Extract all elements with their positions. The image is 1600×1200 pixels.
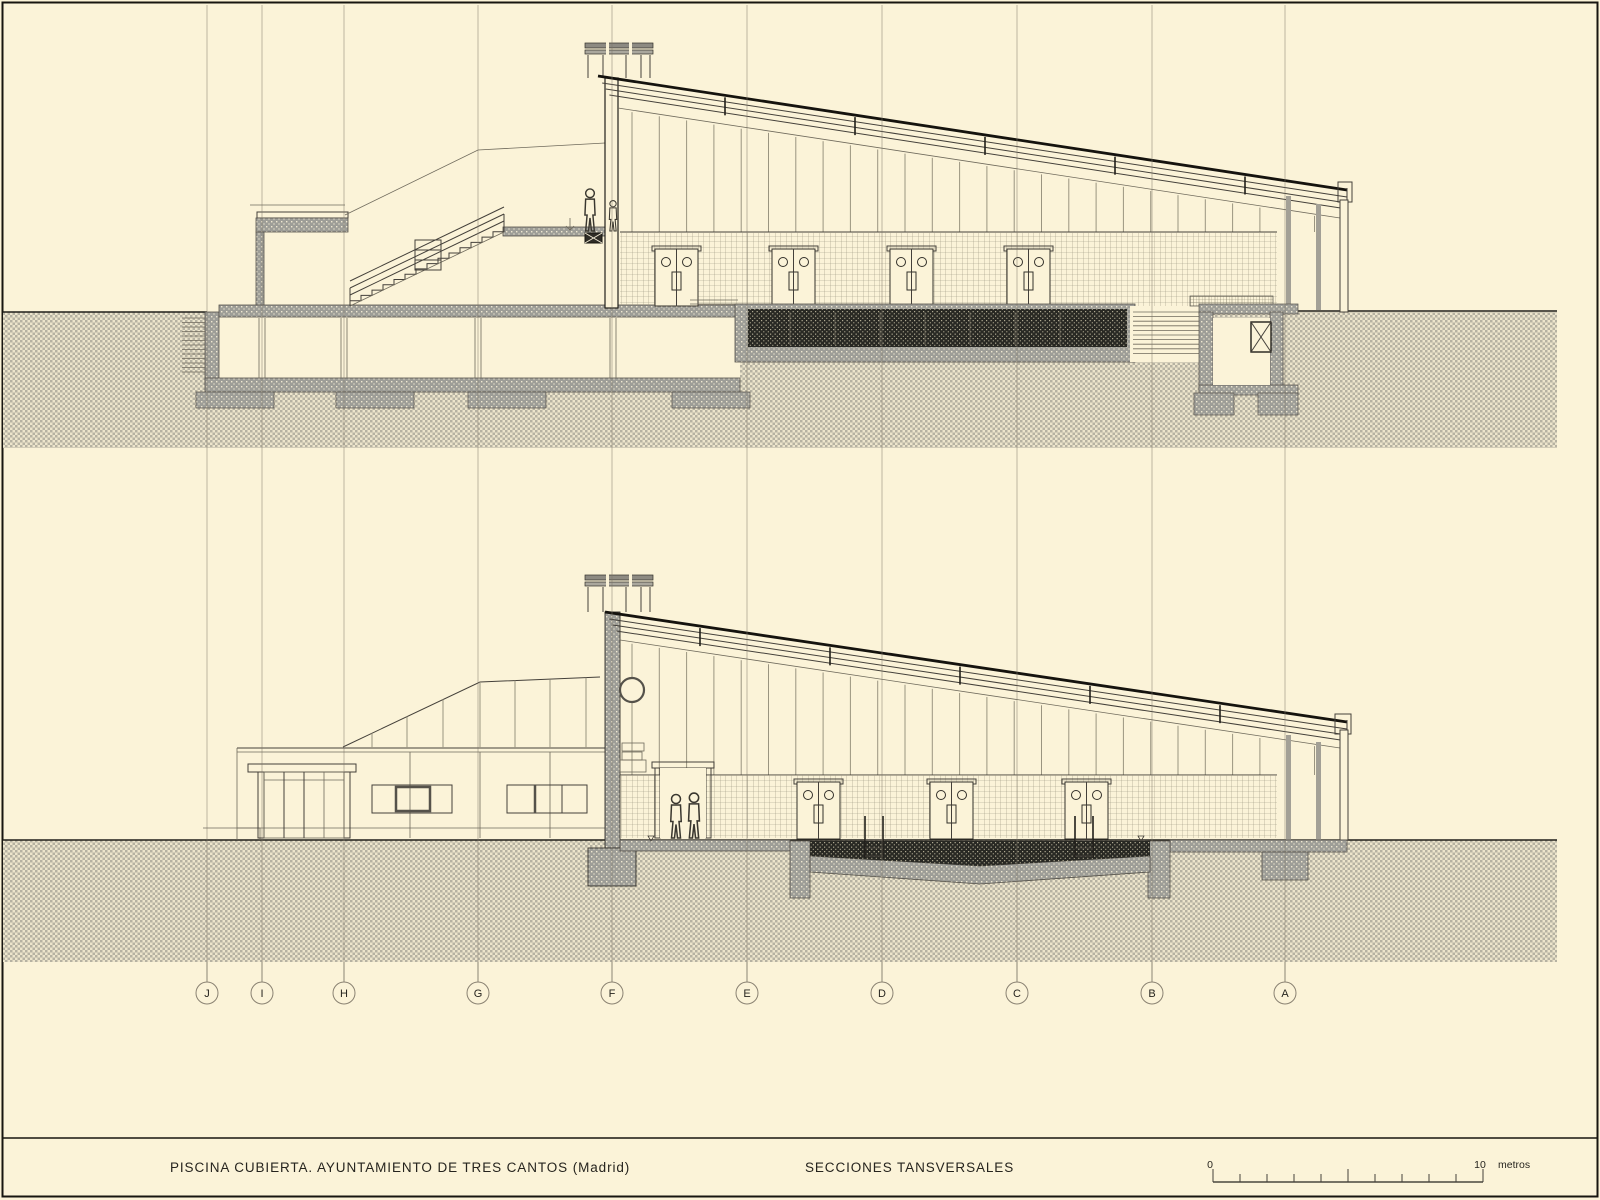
doorway xyxy=(652,762,714,838)
grid-bubble-label: A xyxy=(1281,988,1289,1000)
pool-water-upper xyxy=(748,309,1127,347)
sheet-title: SECCIONES TANSVERSALES xyxy=(805,1160,1014,1175)
annex-wall xyxy=(256,232,264,312)
column xyxy=(1316,204,1321,310)
porthole-window xyxy=(620,678,644,702)
column xyxy=(1316,742,1321,840)
sections-drawing: JIHGFEDCBA PISCINA CUBIERTA. AYUNTAMIENT… xyxy=(0,0,1600,1200)
grid-bubble-label: E xyxy=(743,988,750,1000)
grid-bubble-label: F xyxy=(609,988,616,1000)
hall-right-wall-lower xyxy=(1340,730,1348,840)
drawing-sheet: JIHGFEDCBA PISCINA CUBIERTA. AYUNTAMIENT… xyxy=(0,0,1600,1200)
sheet-background xyxy=(0,0,1600,1200)
footing xyxy=(468,392,546,408)
scale-ten-label: 10 xyxy=(1474,1159,1486,1171)
grid-bubble-label: C xyxy=(1013,988,1021,1000)
project-title: PISCINA CUBIERTA. AYUNTAMIENTO DE TRES C… xyxy=(170,1160,630,1175)
scale-unit-label: metros xyxy=(1498,1159,1530,1171)
ground-floor-slab xyxy=(219,305,740,317)
column xyxy=(1286,196,1291,310)
hall-right-wall xyxy=(1340,200,1348,312)
footing xyxy=(336,392,414,408)
ground-hatch-lower xyxy=(3,840,1557,962)
grid-bubble-label: H xyxy=(340,988,348,1000)
grid-bubble-label: J xyxy=(204,988,210,1000)
grid-bubble-label: D xyxy=(878,988,886,1000)
parapet-beam xyxy=(256,218,348,232)
tiled-wall-upper xyxy=(620,232,1277,306)
column xyxy=(1286,735,1291,840)
grid-bubble-label: I xyxy=(260,988,263,1000)
grid-bubble-label: G xyxy=(474,988,483,1000)
scale-zero-label: 0 xyxy=(1207,1159,1213,1171)
basement-slab xyxy=(205,378,740,392)
cut-wall-lower xyxy=(605,612,620,848)
hall-left-wall xyxy=(605,78,618,308)
footing xyxy=(672,392,750,408)
grid-bubble-label: B xyxy=(1148,988,1155,1000)
